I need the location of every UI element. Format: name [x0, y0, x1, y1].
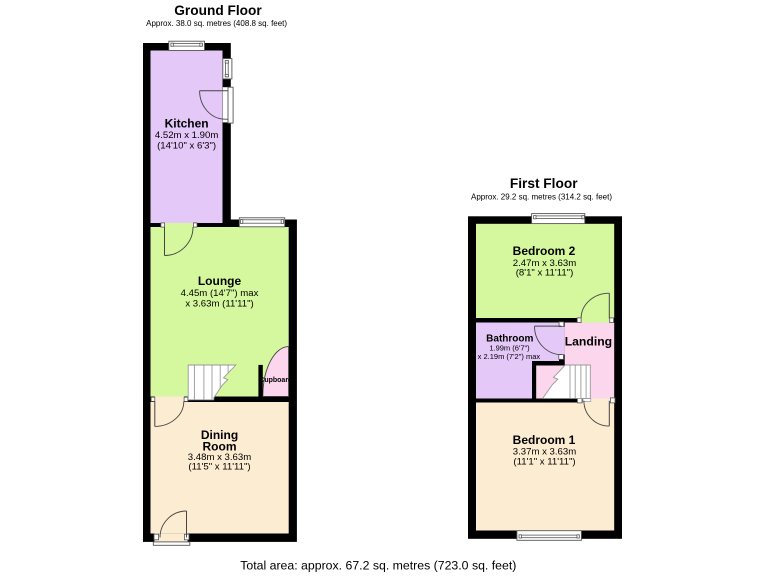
svg-text:Total area: approx. 67.2 sq. m: Total area: approx. 67.2 sq. metres (723…: [240, 558, 516, 572]
svg-text:x 3.63m (11'11"): x 3.63m (11'11"): [185, 298, 253, 309]
svg-text:Landing: Landing: [565, 334, 612, 348]
svg-text:Kitchen: Kitchen: [165, 116, 209, 130]
svg-text:(11'5" x 11'11"): (11'5" x 11'11"): [188, 462, 250, 473]
svg-text:Approx. 29.2 sq. metres (314.2: Approx. 29.2 sq. metres (314.2 sq. feet): [471, 192, 612, 201]
svg-text:Cupboard: Cupboard: [259, 377, 292, 384]
svg-text:(8'1" x 11'11"): (8'1" x 11'11"): [516, 268, 574, 279]
svg-text:Ground Floor: Ground Floor: [174, 3, 262, 18]
svg-text:Bedroom 1: Bedroom 1: [513, 433, 576, 447]
svg-text:Bedroom 2: Bedroom 2: [513, 244, 576, 258]
svg-text:Lounge: Lounge: [198, 274, 242, 288]
svg-text:Approx. 38.0 sq. metres (408.8: Approx. 38.0 sq. metres (408.8 sq. feet): [146, 19, 287, 28]
svg-text:(11'1" x 11'11"): (11'1" x 11'11"): [513, 456, 575, 467]
svg-text:(14'10" x 6'3"): (14'10" x 6'3"): [157, 141, 216, 152]
svg-text:x 2.19m (7'2") max: x 2.19m (7'2") max: [478, 352, 541, 361]
svg-text:First Floor: First Floor: [510, 176, 578, 191]
